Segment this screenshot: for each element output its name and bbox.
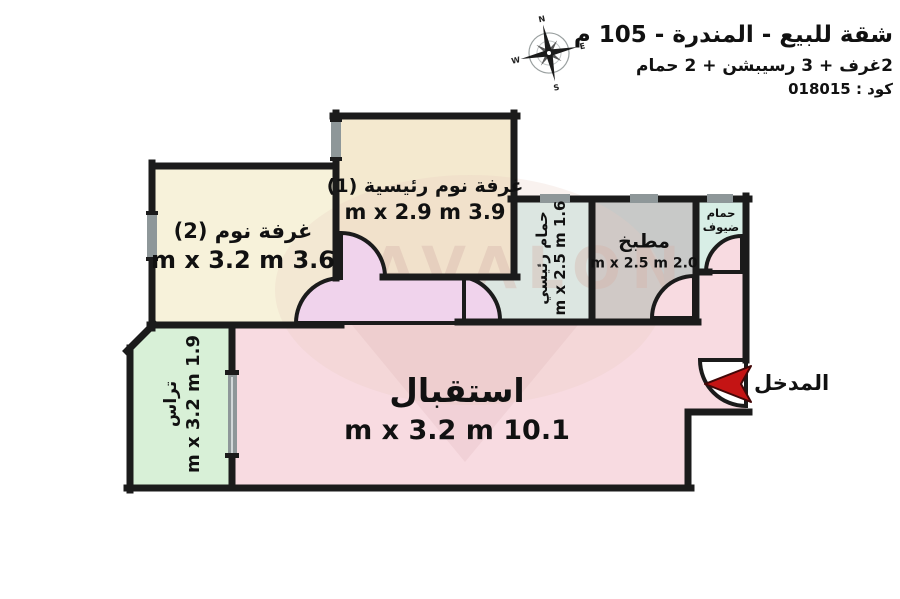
guest-bath-label: حمام ضيوف: [696, 207, 746, 235]
window-master-bedroom: [331, 121, 341, 158]
listing-code: كود : 018015: [788, 80, 893, 98]
master-bedroom-label: غرفة نوم رئيسية (1) 3.9 m x 2.9 m: [327, 174, 524, 226]
room-name: حمام ضيوف: [703, 206, 739, 234]
window-cap: [225, 370, 239, 375]
room-dims: 1.6 m x 2.5 m: [551, 201, 569, 316]
room-dims: 3.9 m x 2.9 m: [327, 199, 524, 226]
compass-s: S: [553, 83, 561, 93]
entrance-label: المدخل: [754, 371, 829, 395]
floor-plan-drawing: AVALON: [0, 0, 900, 599]
room-dims: 1.9 m x 3.2 m: [182, 335, 206, 473]
room-dims: 10.1 m x 3.2 m: [344, 413, 570, 448]
window-guest-bath: [707, 194, 733, 203]
floor-plan-page: AVALON: [0, 0, 900, 599]
window-cap: [146, 211, 158, 215]
room-name: مطبخ: [590, 230, 697, 255]
compass-n: N: [538, 14, 546, 24]
compass-hub: [546, 50, 552, 56]
bedroom2-label: غرفة نوم (2) 3.6 m x 3.2 m: [151, 218, 335, 276]
room-name: حمام رئيسي: [533, 201, 551, 316]
room-dims: 3.6 m x 3.2 m: [151, 245, 335, 276]
window-kitchen: [630, 194, 658, 203]
window-cap: [330, 118, 342, 122]
room-name: استقبال: [344, 370, 570, 413]
kitchen-label: مطبخ 2.0 m x 2.5 m: [590, 230, 697, 273]
terrace-label: تراس 1.9 m x 3.2 m: [160, 335, 206, 473]
room-name: تراس: [160, 335, 182, 473]
master-bath-label: حمام رئيسي 1.6 m x 2.5 m: [533, 201, 569, 316]
page-title: شقة للبيع - المندرة - 105 م: [574, 22, 893, 48]
window-cap: [330, 157, 342, 161]
page-subtitle: 2غرف + 3 رسيبشن + 2 حمام: [636, 56, 893, 76]
window-cap: [225, 453, 239, 458]
room-dims: 2.0 m x 2.5 m: [590, 254, 697, 272]
room-name: غرفة نوم رئيسية (1): [327, 174, 524, 199]
reception-label: استقبال 10.1 m x 3.2 m: [344, 370, 570, 448]
compass-w: W: [511, 55, 522, 66]
room-name: غرفة نوم (2): [151, 218, 335, 245]
